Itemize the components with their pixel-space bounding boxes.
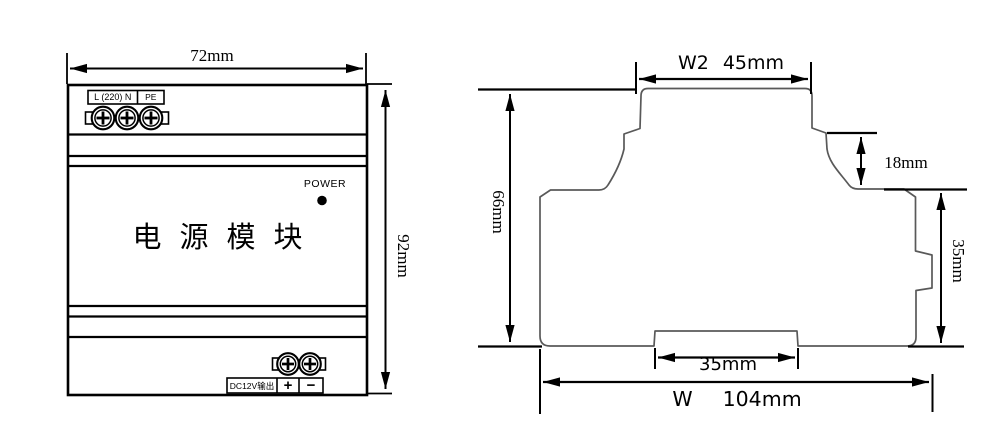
screw-terminal-icon bbox=[299, 353, 321, 375]
screw-terminal-icon bbox=[140, 107, 163, 130]
side-step-dimension-label: 18mm bbox=[866, 154, 946, 173]
side-total-width-dimension-label: W 104mm bbox=[627, 388, 847, 411]
screw-terminal-icon bbox=[92, 107, 115, 130]
product-name: 电源模块 bbox=[68, 223, 367, 255]
side-top-width-prefix: W2 bbox=[678, 53, 709, 74]
side-total-width-value: 104mm bbox=[723, 388, 802, 411]
screw-terminal-icon bbox=[116, 107, 139, 130]
side-rail-height-dimension-label: 35mm bbox=[945, 201, 967, 321]
side-top-width-value: 45mm bbox=[723, 53, 784, 74]
side-bottom-slot-dimension-label: 35mm bbox=[668, 355, 788, 375]
front-height-dimension-label: 92mm bbox=[390, 196, 412, 316]
input-screw-terminals bbox=[86, 107, 169, 130]
side-height-dimension-label: 66mm bbox=[485, 152, 507, 272]
output-minus-label: − bbox=[299, 378, 323, 393]
front-width-dimension-label: 72mm bbox=[152, 47, 272, 66]
side-profile-outline bbox=[540, 89, 932, 347]
input-terminal-pe-label: PE bbox=[138, 91, 165, 105]
technical-drawing-page: 72mm 92mm L (220) N PE POWER 电源模块 DC12V输… bbox=[0, 0, 990, 444]
input-terminal-label: L (220) N bbox=[88, 91, 138, 105]
power-led-icon bbox=[317, 196, 327, 206]
side-top-width-dimension-label: W2 45mm bbox=[651, 53, 811, 74]
output-terminal-label: DC12V输出 bbox=[227, 378, 277, 393]
front-height-dimension bbox=[367, 84, 392, 394]
output-plus-label: + bbox=[277, 378, 299, 393]
screw-terminal-icon bbox=[277, 353, 299, 375]
power-led-label: POWER bbox=[285, 179, 365, 191]
side-total-width-prefix: W bbox=[672, 388, 692, 411]
